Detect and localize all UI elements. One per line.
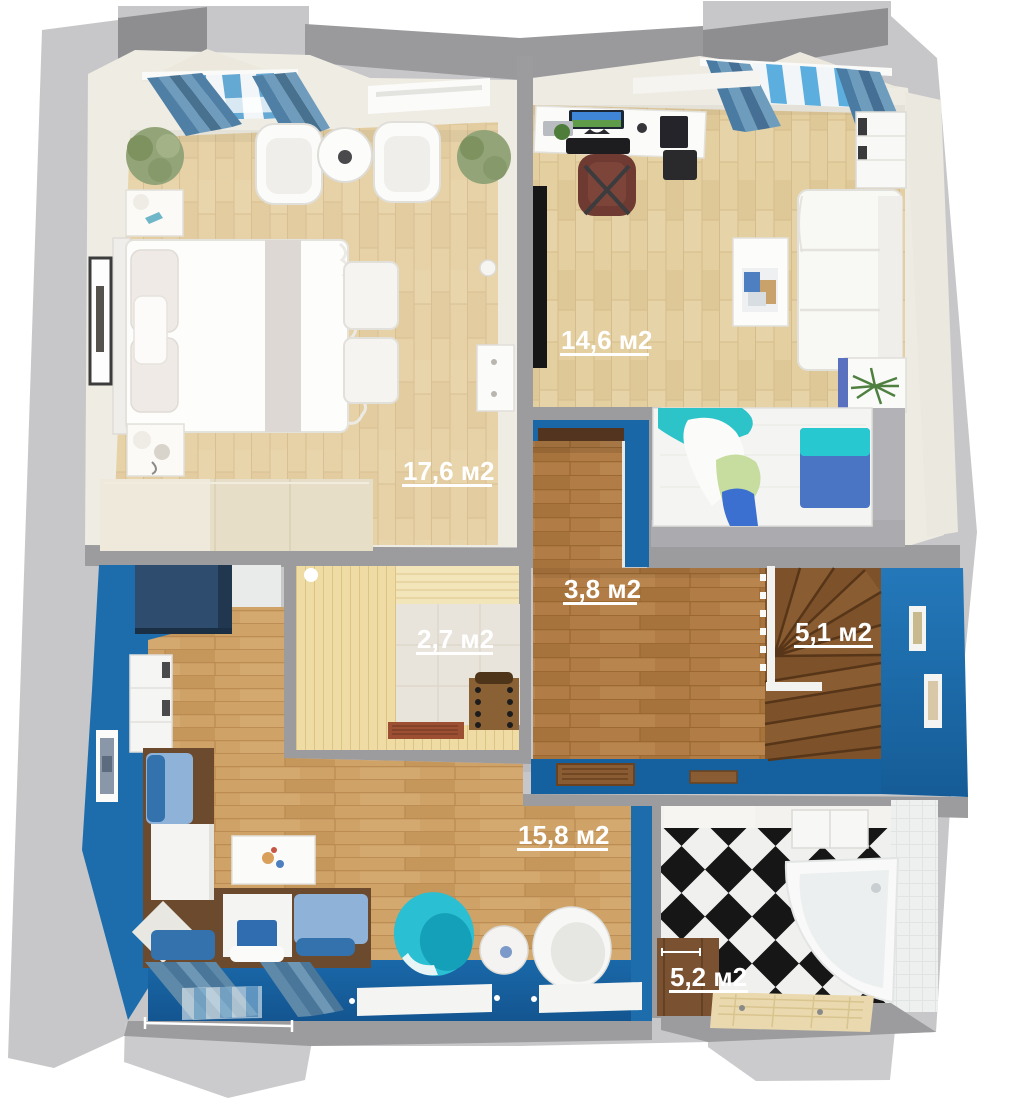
svg-text:17,6 м2: 17,6 м2 (403, 456, 495, 486)
svg-text:3,8 м2: 3,8 м2 (564, 574, 641, 604)
svg-text:15,8 м2: 15,8 м2 (518, 820, 610, 850)
svg-text:2,7 м2: 2,7 м2 (417, 624, 494, 654)
svg-text:5,2 м2: 5,2 м2 (670, 962, 747, 992)
svg-text:5,1 м2: 5,1 м2 (795, 617, 872, 647)
svg-text:14,6 м2: 14,6 м2 (561, 325, 653, 355)
